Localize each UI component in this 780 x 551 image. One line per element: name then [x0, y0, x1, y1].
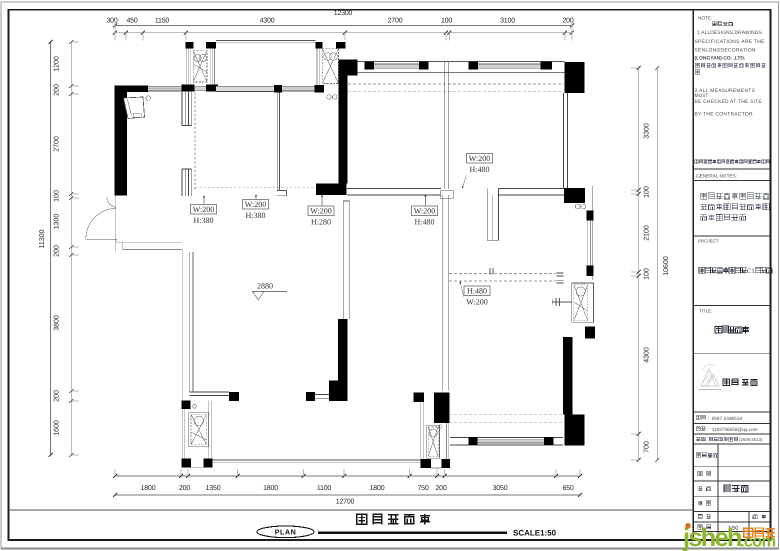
svg-text:2700: 2700: [54, 136, 61, 152]
svg-text:650: 650: [562, 485, 573, 492]
svg-text:1800: 1800: [370, 485, 385, 492]
svg-text:NOTE:: NOTE:: [698, 15, 712, 20]
svg-text:W:200: W:200: [245, 200, 266, 209]
svg-text:2100: 2100: [644, 225, 651, 241]
svg-text:(2606-2613): (2606-2613): [739, 437, 763, 442]
svg-text:：1193786558@qq.com: ：1193786558@qq.com: [707, 427, 758, 432]
svg-text:100: 100: [644, 186, 651, 198]
svg-text:1.ALLDESIGNS,DRAWINGS: 1.ALLDESIGNS,DRAWINGS: [697, 30, 763, 36]
svg-text:100: 100: [441, 17, 452, 24]
svg-text:TITLE:: TITLE:: [699, 309, 712, 314]
svg-text:12700: 12700: [336, 499, 355, 506]
svg-text:H:380: H:380: [246, 211, 266, 220]
svg-text:10600: 10600: [663, 256, 670, 276]
svg-text:jsheh: jsheh: [682, 524, 741, 551]
svg-text:11300: 11300: [39, 229, 46, 248]
svg-text:450: 450: [126, 17, 137, 24]
svg-text:H:480: H:480: [415, 218, 435, 227]
svg-text:4300: 4300: [260, 17, 275, 24]
svg-text:W:200: W:200: [469, 154, 490, 163]
svg-text:2700: 2700: [388, 17, 403, 24]
svg-text:1800: 1800: [141, 485, 156, 492]
svg-text:BY THE CONTRACTOR.: BY THE CONTRACTOR.: [695, 111, 755, 117]
svg-text:1600: 1600: [54, 420, 61, 436]
svg-text:100: 100: [644, 268, 651, 280]
svg-text:200: 200: [54, 84, 61, 96]
svg-text:W:200: W:200: [310, 207, 331, 216]
svg-text:PLAN: PLAN: [275, 528, 297, 537]
svg-text:W:200: W:200: [193, 205, 214, 214]
svg-text:H:480: H:480: [467, 287, 487, 296]
svg-text:1100: 1100: [317, 485, 332, 492]
svg-text:2880: 2880: [257, 282, 273, 291]
svg-text:3800: 3800: [54, 315, 61, 331]
svg-text:1200: 1200: [54, 56, 61, 72]
svg-text:1300: 1300: [54, 214, 61, 230]
svg-text:W:200: W:200: [414, 207, 435, 216]
svg-text:SCALE1:50: SCALE1:50: [513, 528, 557, 537]
svg-text:W:200: W:200: [466, 298, 487, 307]
svg-text:3100: 3100: [500, 17, 515, 24]
svg-text:C1: C1: [747, 268, 755, 275]
svg-text:12300: 12300: [334, 10, 353, 17]
svg-text:H:480: H:480: [470, 165, 490, 174]
svg-text:200: 200: [435, 485, 446, 492]
svg-text:200: 200: [54, 245, 61, 257]
svg-text:1150: 1150: [155, 17, 170, 24]
svg-text:PROJECT:: PROJECT:: [698, 239, 719, 244]
svg-text::: :: [706, 437, 707, 442]
svg-text:H:380: H:380: [194, 216, 214, 225]
svg-text:4300: 4300: [644, 347, 651, 363]
svg-text:GENERAL NOTES:: GENERAL NOTES:: [696, 174, 737, 179]
svg-text:1350: 1350: [206, 485, 221, 492]
svg-text:200: 200: [54, 390, 61, 402]
svg-text:(LONGYAN)-CO. ,LTD.: (LONGYAN)-CO. ,LTD.: [695, 56, 746, 62]
svg-text:SENLONGDECORATION: SENLONGDECORATION: [695, 48, 756, 54]
svg-text:SPECIFICATIONS ARE THE: SPECIFICATIONS ARE THE: [695, 39, 766, 45]
svg-text:1800: 1800: [263, 485, 278, 492]
svg-text:700: 700: [644, 441, 651, 453]
svg-text:100: 100: [54, 190, 61, 202]
svg-text:200: 200: [179, 485, 190, 492]
svg-text:：0597-2336518: ：0597-2336518: [707, 416, 742, 421]
svg-text:BE CHECKED AT THE SITE: BE CHECKED AT THE SITE: [695, 99, 763, 105]
svg-text:750: 750: [417, 485, 428, 492]
svg-text:3300: 3300: [644, 123, 651, 139]
svg-text:H:280: H:280: [311, 218, 331, 227]
svg-text:3050: 3050: [493, 485, 508, 492]
svg-text:MUST: MUST: [695, 93, 709, 99]
svg-text:300: 300: [106, 17, 117, 24]
